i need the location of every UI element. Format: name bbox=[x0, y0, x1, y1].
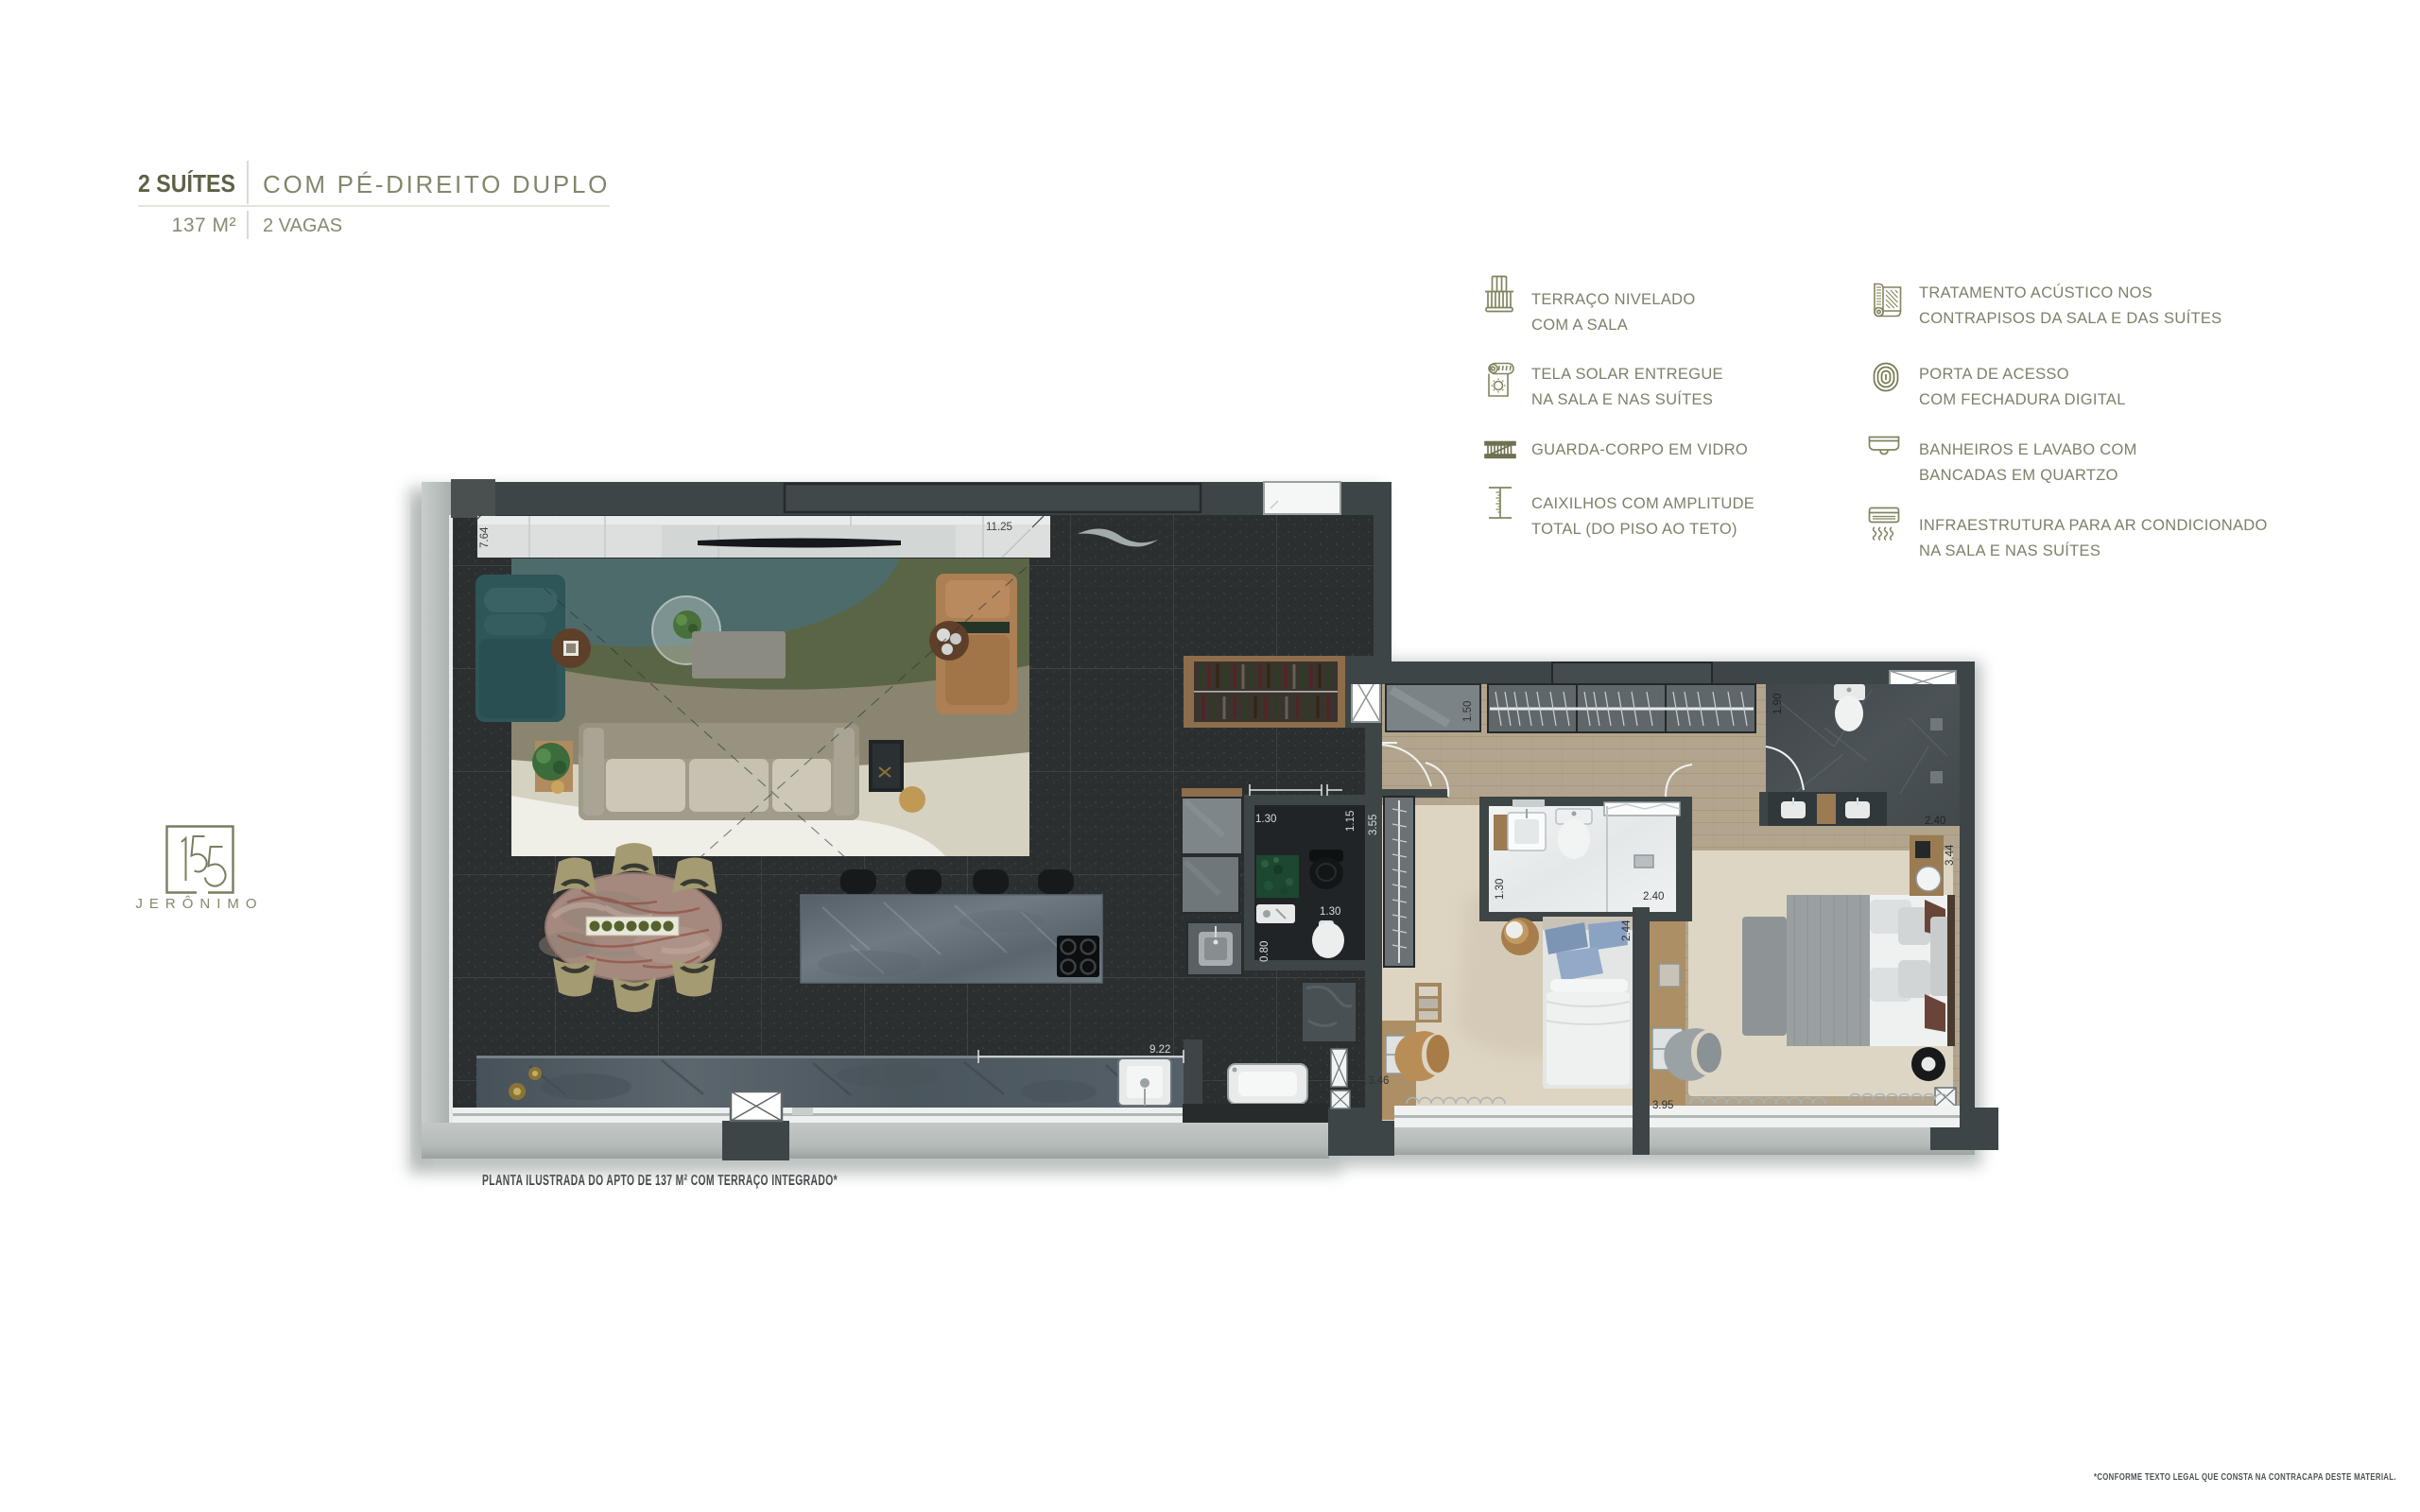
svg-text:1.30: 1.30 bbox=[1255, 814, 1276, 825]
svg-text:1.30: 1.30 bbox=[1495, 879, 1506, 900]
svg-text:11.25: 11.25 bbox=[986, 522, 1012, 533]
svg-text:3.55: 3.55 bbox=[1368, 815, 1379, 835]
svg-text:3.46: 3.46 bbox=[1368, 1075, 1389, 1087]
svg-text:3.95: 3.95 bbox=[1652, 1100, 1673, 1111]
svg-text:1.50: 1.50 bbox=[1462, 701, 1474, 722]
svg-text:0.80: 0.80 bbox=[1259, 941, 1270, 962]
svg-text:1.30: 1.30 bbox=[1320, 906, 1340, 918]
svg-text:2.44: 2.44 bbox=[1621, 919, 1633, 941]
svg-text:2.40: 2.40 bbox=[1643, 891, 1664, 902]
svg-text:1.15: 1.15 bbox=[1345, 811, 1357, 832]
svg-text:7.64: 7.64 bbox=[479, 526, 491, 548]
svg-text:1.90: 1.90 bbox=[1772, 694, 1784, 714]
svg-text:2.40: 2.40 bbox=[1925, 816, 1945, 827]
svg-text:3.44: 3.44 bbox=[1945, 844, 1956, 866]
svg-text:9.22: 9.22 bbox=[1149, 1044, 1170, 1056]
